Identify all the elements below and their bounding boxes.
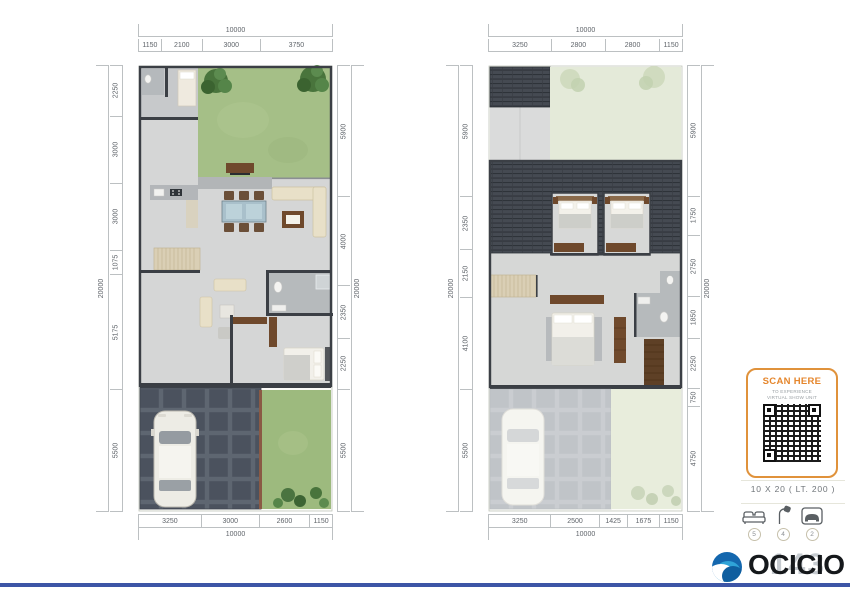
dim-segment: 2250 xyxy=(110,65,123,116)
front-garden xyxy=(259,390,331,509)
bathroom xyxy=(269,273,331,313)
dim-segment: 1425 xyxy=(599,514,627,527)
dim-segment: 2250 xyxy=(337,338,350,389)
dim-segment: 2150 xyxy=(460,249,473,297)
dim-segment: 5175 xyxy=(110,274,123,389)
garden-view-below xyxy=(550,66,681,161)
bedroom-1 xyxy=(552,193,598,255)
dim-segment: 1150 xyxy=(659,514,683,527)
dim-left-total-ground: 20000 xyxy=(96,65,109,512)
upper-floor-drawing xyxy=(488,65,683,512)
dim-segment: 10000 xyxy=(138,24,333,37)
carport-count: 2 xyxy=(806,528,819,541)
dim-segment: 5900 xyxy=(460,65,473,196)
brand-name: OCICIO xyxy=(748,549,845,581)
tv-console xyxy=(226,163,254,175)
dim-bottom-segments-upper: 32502500142516751150 xyxy=(488,514,683,527)
dim-segment: 1150 xyxy=(138,39,161,52)
bottom-accent-bar xyxy=(0,583,850,587)
dim-segment: 10000 xyxy=(138,527,333,540)
dim-right-segments-ground: 59004000235022505500 xyxy=(337,65,350,512)
dim-segment: 1850 xyxy=(687,296,700,338)
dim-segment: 2350 xyxy=(337,285,350,338)
dim-segment: 4100 xyxy=(460,297,473,388)
roof-front xyxy=(490,67,550,107)
dim-segment: 3000 xyxy=(110,183,123,250)
dim-segment: 1075 xyxy=(110,250,123,275)
dim-top-segments-upper: 3250280028001150 xyxy=(488,39,683,52)
utility-rooms xyxy=(140,67,198,120)
ground-floor-plan xyxy=(138,65,333,512)
qr-title: SCAN HERE xyxy=(748,376,836,387)
dim-top-total-ground: 10000 xyxy=(138,24,333,37)
qr-finder-pattern xyxy=(808,404,821,417)
dim-segment: 4000 xyxy=(337,196,350,285)
dim-segment: 2600 xyxy=(259,514,309,527)
dim-segment: 2100 xyxy=(161,39,202,52)
car-icon xyxy=(801,506,823,525)
wardrobe xyxy=(269,317,277,347)
dim-segment: 1675 xyxy=(627,514,660,527)
dim-segment: 5500 xyxy=(460,389,473,512)
dim-top-segments-ground: 1150210030003750 xyxy=(138,39,333,52)
dim-segment: 2800 xyxy=(605,39,659,52)
dining-set xyxy=(222,191,266,232)
dim-right-segments-upper: 590017502750185022507504750 xyxy=(687,65,700,512)
tall-wardrobe xyxy=(644,339,664,385)
dim-bottom-total-upper: 10000 xyxy=(488,527,683,540)
terrace xyxy=(198,177,272,189)
dim-segment: 5900 xyxy=(687,65,700,196)
bedroom-count: 5 xyxy=(748,528,761,541)
ocicio-logo-icon xyxy=(712,552,742,582)
wardrobe xyxy=(233,317,267,324)
dim-segment: 5900 xyxy=(337,65,350,196)
dim-segment: 3250 xyxy=(138,514,201,527)
dim-segment: 4750 xyxy=(687,406,700,512)
dim-right-total-upper: 20000 xyxy=(701,65,714,512)
feature-row: 5 4 2 xyxy=(741,506,825,541)
sliding-door xyxy=(272,178,331,180)
dim-segment: 2500 xyxy=(550,514,598,527)
feature-bathrooms: 4 xyxy=(770,506,796,541)
dim-bottom-total-ground: 10000 xyxy=(138,527,333,540)
bedroom-2 xyxy=(604,193,650,255)
dim-left-total-upper: 20000 xyxy=(446,65,459,512)
qr-subtitle: TO EXPERIENCE VIRTUAL SHOW UNIT xyxy=(748,389,836,400)
dim-segment: 3750 xyxy=(260,39,333,52)
car-illustration xyxy=(151,411,199,507)
ground-floor-drawing xyxy=(138,65,333,512)
dim-segment: 750 xyxy=(687,388,700,405)
qr-code[interactable] xyxy=(763,404,821,462)
master-bathroom xyxy=(634,293,681,337)
qr-card: SCAN HERE TO EXPERIENCE VIRTUAL SHOW UNI… xyxy=(746,368,838,478)
dim-segment: 5500 xyxy=(337,389,350,512)
dim-segment: 3250 xyxy=(488,514,550,527)
qr-finder-pattern xyxy=(763,449,776,462)
dim-segment: 20000 xyxy=(446,65,459,512)
feature-carports: 2 xyxy=(799,506,825,541)
dim-segment: 3000 xyxy=(202,39,260,52)
rear-garden xyxy=(198,65,331,179)
bed-illustration xyxy=(284,347,331,381)
dim-segment: 1150 xyxy=(659,39,683,52)
upper-floor-plan xyxy=(488,65,683,512)
dim-bottom-segments-ground: 3250300026001150 xyxy=(138,514,333,527)
dim-segment: 3000 xyxy=(201,514,259,527)
dim-segment: 1750 xyxy=(687,196,700,235)
dim-left-segments-ground: 225030003000107551755500 xyxy=(110,65,123,512)
dim-segment: 3250 xyxy=(488,39,551,52)
dim-segment: 2800 xyxy=(551,39,605,52)
dim-left-segments-upper: 59002350215041005500 xyxy=(460,65,473,512)
dim-segment: 10000 xyxy=(488,24,683,37)
dim-segment: 2350 xyxy=(460,196,473,249)
dim-segment: 10000 xyxy=(488,527,683,540)
unit-size-label: 10 X 20 ( LT. 200 ) xyxy=(741,484,845,494)
dim-segment: 3000 xyxy=(110,116,123,183)
dim-segment: 5500 xyxy=(110,389,123,512)
ground-level-below xyxy=(490,389,681,509)
dim-segment: 2250 xyxy=(687,338,700,388)
dim-segment: 20000 xyxy=(351,65,364,512)
dim-top-total-upper: 10000 xyxy=(488,24,683,37)
bathroom-count: 4 xyxy=(777,528,790,541)
dim-segment: 1150 xyxy=(309,514,333,527)
divider-line xyxy=(741,480,845,481)
bed-icon xyxy=(742,506,766,525)
dim-segment: 2750 xyxy=(687,235,700,296)
feature-bedrooms: 5 xyxy=(741,506,767,541)
dim-right-total-ground: 20000 xyxy=(351,65,364,512)
stairs-upper xyxy=(490,275,538,297)
dim-segment: 20000 xyxy=(701,65,714,512)
dim-segment: 20000 xyxy=(96,65,109,512)
divider-line xyxy=(741,503,845,504)
shower-icon xyxy=(776,506,791,525)
floorplan-sheet: 10000 1150210030003750 20000 22503000300… xyxy=(0,0,850,593)
qr-finder-pattern xyxy=(763,404,776,417)
brand-logo: 143 OCICIO xyxy=(704,546,850,586)
